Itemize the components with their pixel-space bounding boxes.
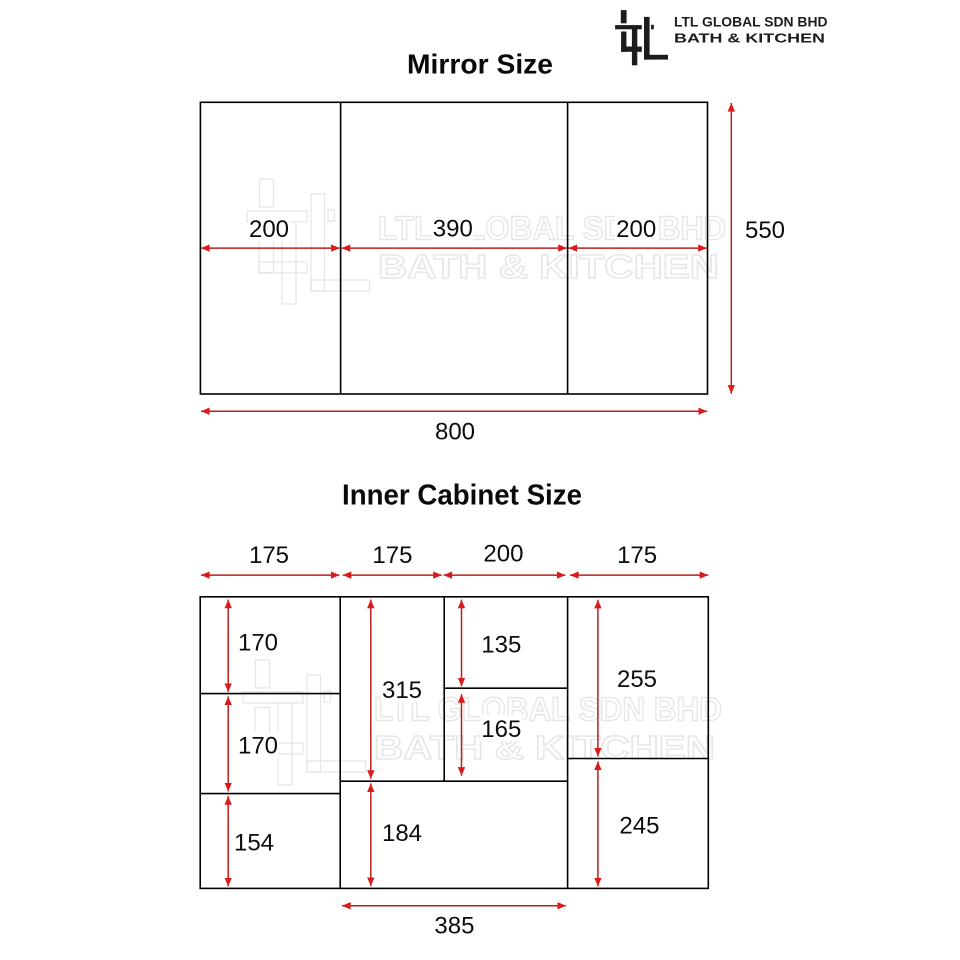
svg-text:170: 170 xyxy=(238,733,278,760)
svg-text:200: 200 xyxy=(483,540,523,567)
svg-text:245: 245 xyxy=(619,813,659,840)
svg-text:200: 200 xyxy=(616,216,656,243)
svg-text:184: 184 xyxy=(382,820,422,847)
svg-text:Inner Cabinet Size: Inner Cabinet Size xyxy=(342,480,582,512)
svg-text:390: 390 xyxy=(433,216,473,243)
svg-text:135: 135 xyxy=(481,632,521,659)
svg-text:800: 800 xyxy=(435,419,475,446)
svg-text:200: 200 xyxy=(249,216,289,243)
svg-text:255: 255 xyxy=(617,666,657,693)
svg-text:550: 550 xyxy=(745,217,785,244)
svg-text:385: 385 xyxy=(434,913,474,940)
svg-text:170: 170 xyxy=(238,630,278,657)
svg-text:165: 165 xyxy=(481,716,521,743)
svg-text:175: 175 xyxy=(249,542,289,569)
svg-text:LTL GLOBAL SDN BHD: LTL GLOBAL SDN BHD xyxy=(674,14,828,30)
svg-text:175: 175 xyxy=(372,542,412,569)
svg-text:Mirror Size: Mirror Size xyxy=(407,49,553,80)
svg-text:BATH & KITCHEN: BATH & KITCHEN xyxy=(674,31,825,46)
svg-text:154: 154 xyxy=(234,830,274,857)
svg-text:175: 175 xyxy=(617,542,657,569)
svg-text:315: 315 xyxy=(382,677,422,704)
